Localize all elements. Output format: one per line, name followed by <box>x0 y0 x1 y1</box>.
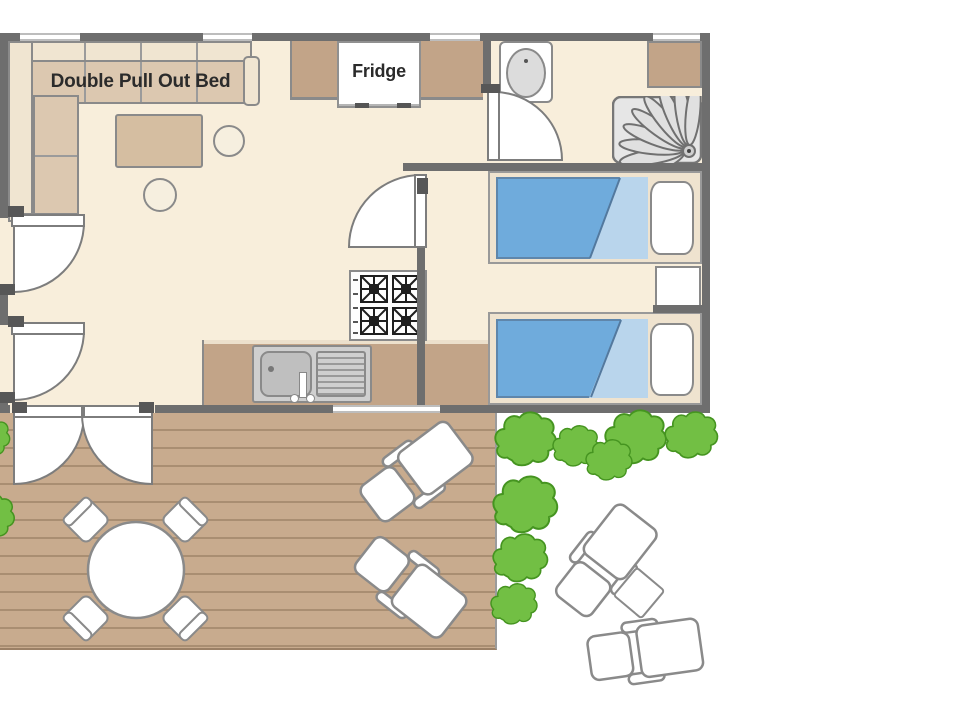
wall-livingroom-right <box>417 247 425 405</box>
bush <box>493 534 547 581</box>
wall-bedroom-divider-stub <box>653 305 702 313</box>
shower-tray <box>612 96 702 164</box>
faucet-handle <box>290 394 299 403</box>
window-top-2 <box>203 33 252 41</box>
wall-bathroom-left <box>483 33 491 92</box>
bed2-blanket-fold <box>496 319 648 398</box>
window-top-1 <box>20 33 80 41</box>
sofa-front-edge <box>8 213 79 222</box>
toilet-bowl <box>506 48 546 98</box>
fridge-foot <box>397 103 411 108</box>
wall-bathroom-bedroom-divider <box>403 163 710 171</box>
bedside-cabinet <box>655 266 701 310</box>
wall-bottom-2 <box>155 405 333 413</box>
fridge-foot <box>355 103 369 108</box>
bush <box>553 426 599 466</box>
wall-left-mid <box>0 290 8 325</box>
wall-top <box>0 33 710 41</box>
bed1-mattress <box>496 177 648 259</box>
bathroom-cabinet <box>647 41 702 88</box>
bed2-mattress <box>496 319 648 398</box>
bush <box>493 476 557 532</box>
shower-drain <box>687 149 691 153</box>
sofa-back-left <box>8 41 33 215</box>
sofa-back-top <box>28 41 252 62</box>
sink-drain-dot <box>268 366 274 372</box>
sink-drainer <box>316 351 366 397</box>
sofa-label: Double Pull Out Bed <box>33 62 248 102</box>
garden-side-table <box>614 568 665 619</box>
window-top-3 <box>430 33 480 41</box>
bed1-blanket-fold <box>496 177 648 259</box>
stool <box>213 125 245 157</box>
sofa-seat-left <box>33 95 79 215</box>
sun-lounger <box>585 613 705 690</box>
bush <box>586 440 632 480</box>
bush <box>495 412 556 465</box>
faucet-handle <box>306 394 315 403</box>
sun-lounger <box>546 498 664 624</box>
fridge-label: Fridge <box>339 43 419 99</box>
stool <box>143 178 177 212</box>
window-top-4 <box>653 33 700 41</box>
window-bottom <box>333 405 440 413</box>
sink-faucet <box>299 372 307 398</box>
floorplan-canvas: Double Pull Out Bed Fridge <box>0 0 960 720</box>
wall-bottom-3 <box>440 405 710 413</box>
bush <box>665 412 717 458</box>
deck-area <box>0 413 497 650</box>
bed2-pillow <box>650 323 694 396</box>
toilet-flush-dot <box>524 59 528 63</box>
wall-left-upper <box>0 33 8 218</box>
fridge: Fridge <box>337 41 421 108</box>
bush <box>491 584 537 624</box>
bed1-pillow <box>650 181 694 255</box>
stove-hob <box>349 270 427 341</box>
wall-right <box>702 33 710 413</box>
coffee-table <box>115 114 203 168</box>
wall-bottom-1 <box>0 405 10 413</box>
bush <box>605 410 666 463</box>
